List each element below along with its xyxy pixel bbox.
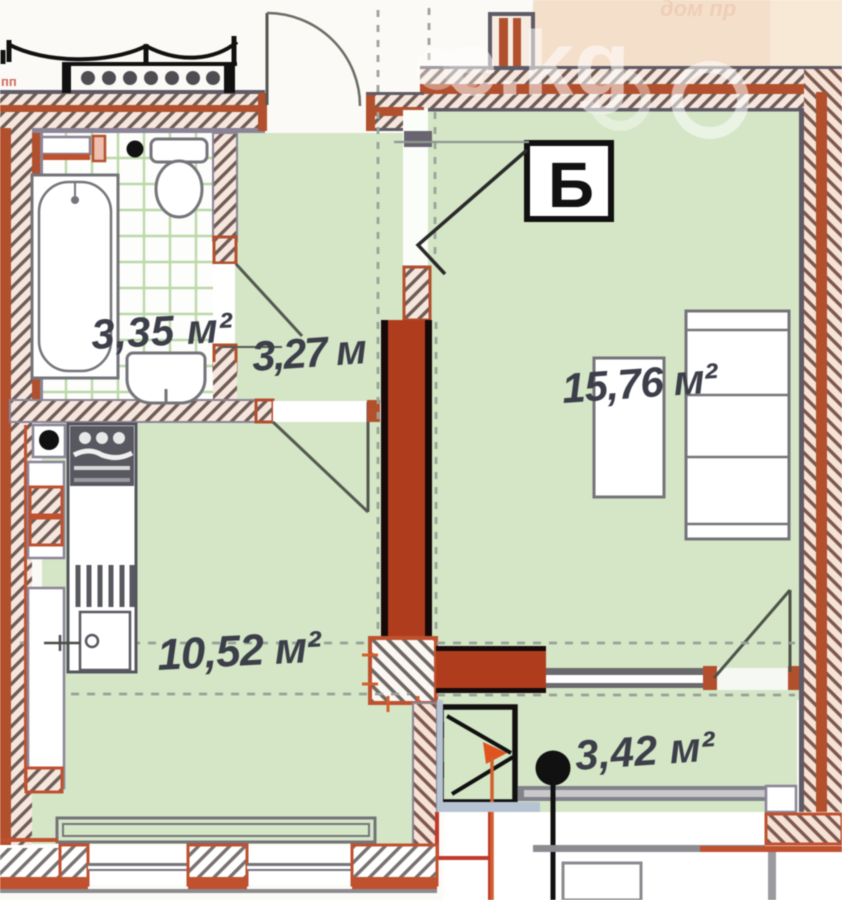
svg-text:3,27 м: 3,27 м [250,325,368,380]
svg-text:3,42 м²: 3,42 м² [573,722,717,779]
svg-text:3,35 м²: 3,35 м² [90,304,234,358]
svg-text:пп: пп [1,74,17,89]
svg-text:10,52 м²: 10,52 м² [156,622,324,680]
svg-text:Б: Б [548,149,594,221]
svg-text:дом пр: дом пр [660,0,736,21]
